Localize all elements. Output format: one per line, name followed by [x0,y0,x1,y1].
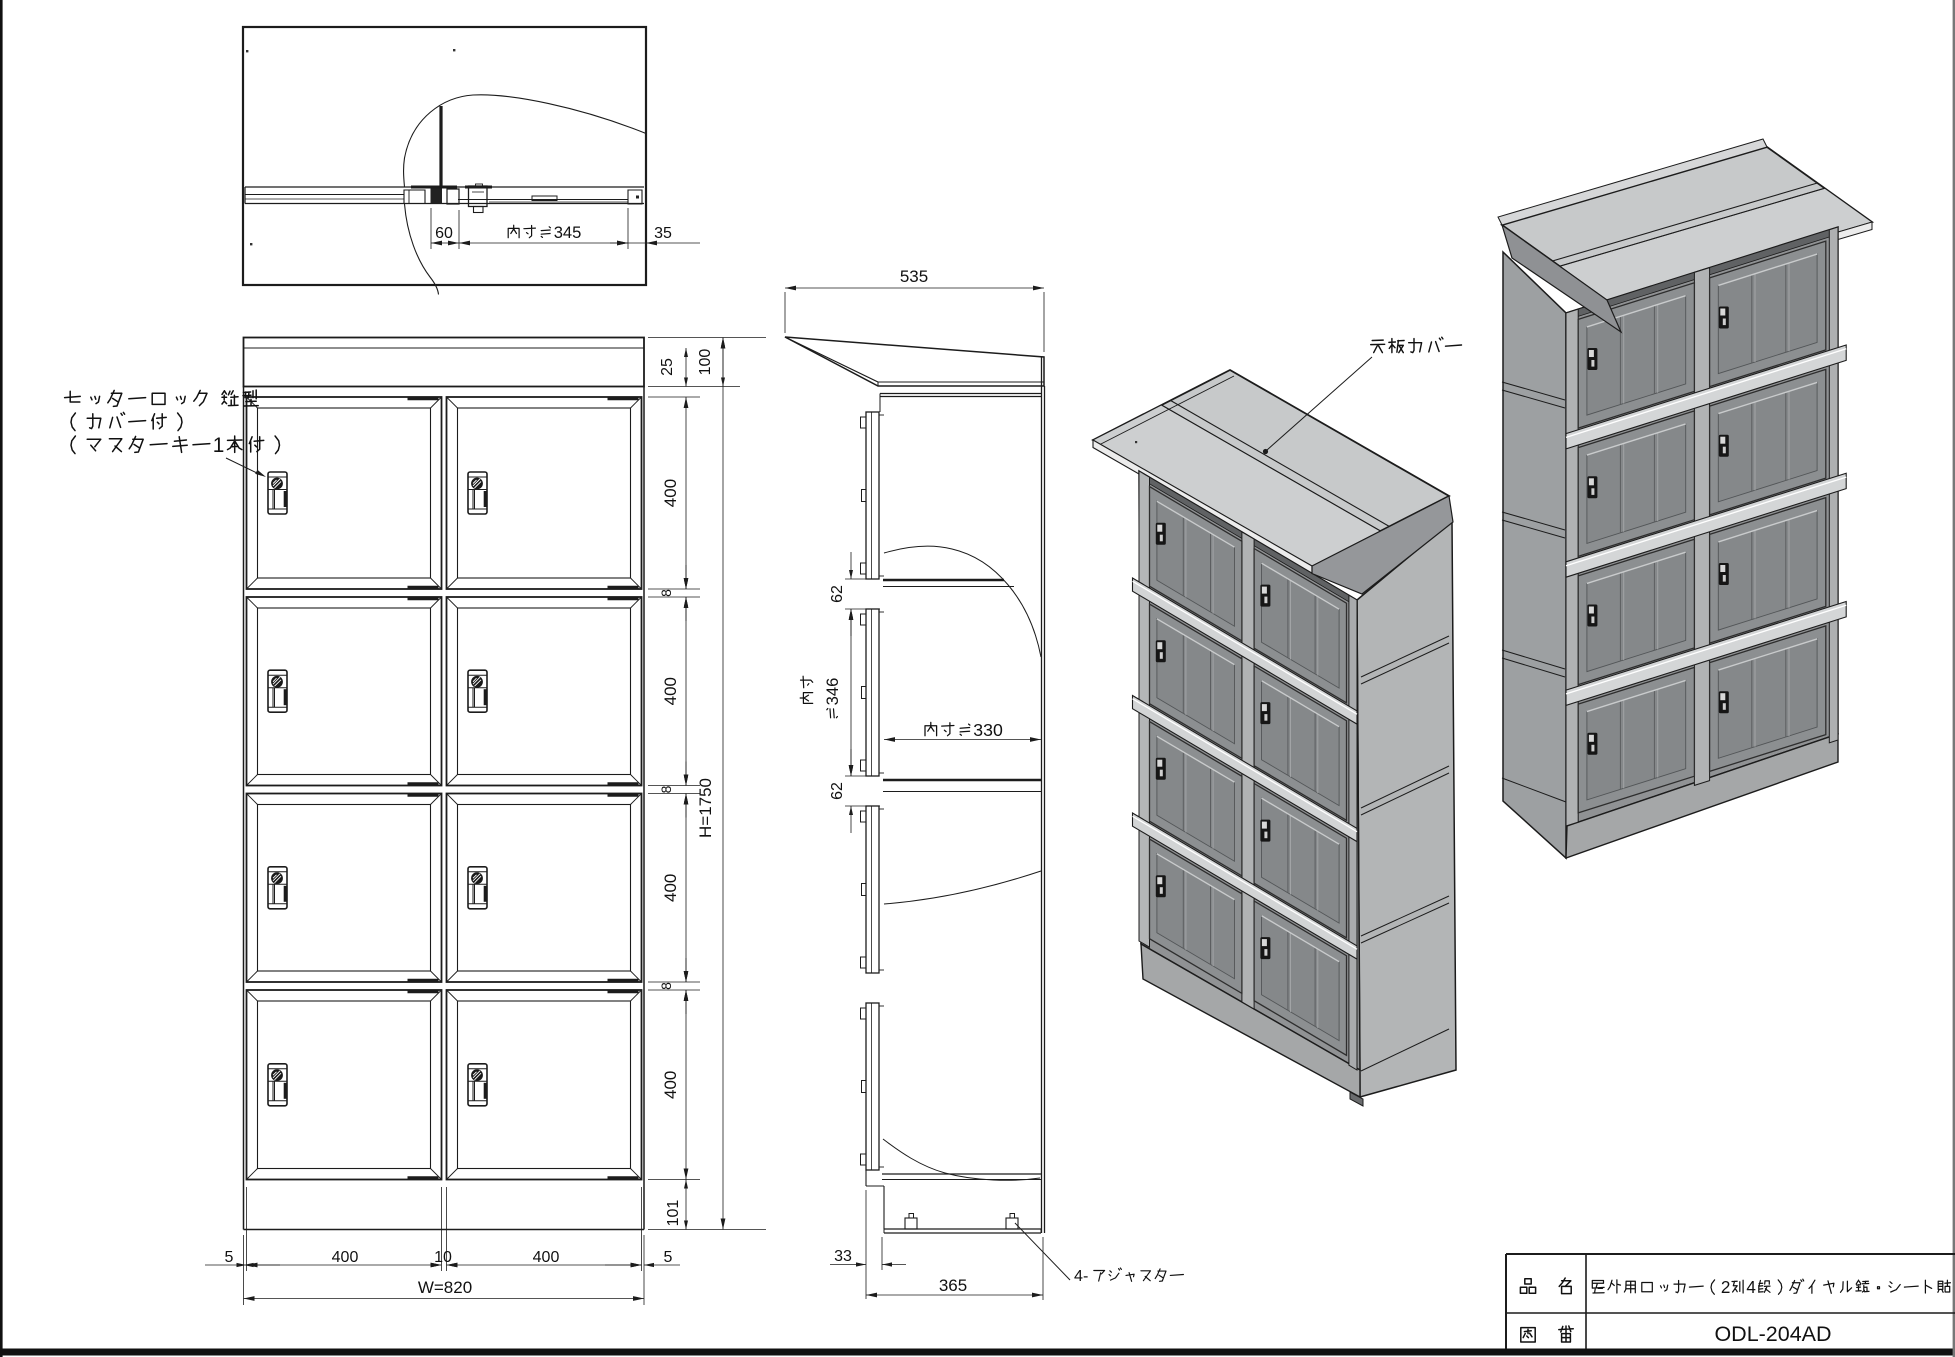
svg-text:5: 5 [225,1249,234,1266]
svg-text:1: 1 [213,434,225,457]
svg-text:400: 400 [332,1249,359,1266]
svg-text:ODL-204AD: ODL-204AD [1714,1322,1831,1346]
svg-text:345: 345 [554,223,582,242]
svg-text:365: 365 [939,1276,967,1295]
svg-text:400: 400 [661,677,680,705]
svg-text:400: 400 [661,874,680,902]
svg-text:25: 25 [659,358,676,376]
svg-text:10: 10 [434,1249,452,1266]
svg-text:330: 330 [973,720,1003,740]
svg-text:101: 101 [665,1200,682,1227]
svg-text:400: 400 [533,1249,560,1266]
svg-text:4: 4 [1746,1278,1756,1297]
svg-text:62: 62 [829,782,846,800]
svg-text:535: 535 [900,267,928,286]
svg-text:400: 400 [661,1071,680,1099]
svg-text:8: 8 [658,785,674,793]
svg-text:60: 60 [435,225,453,242]
svg-text:33: 33 [834,1248,852,1265]
svg-text:2: 2 [1721,1278,1731,1297]
svg-text:H=1750: H=1750 [696,778,715,838]
svg-text:8: 8 [658,982,674,990]
svg-text:100: 100 [697,349,714,376]
svg-text:5: 5 [664,1249,673,1266]
svg-text:8: 8 [658,589,674,597]
svg-text:4-: 4- [1074,1267,1088,1285]
svg-text:400: 400 [661,479,680,507]
svg-text:W=820: W=820 [418,1278,472,1297]
svg-text:62: 62 [829,585,846,603]
svg-text:35: 35 [654,225,672,242]
svg-text:346: 346 [823,678,842,706]
